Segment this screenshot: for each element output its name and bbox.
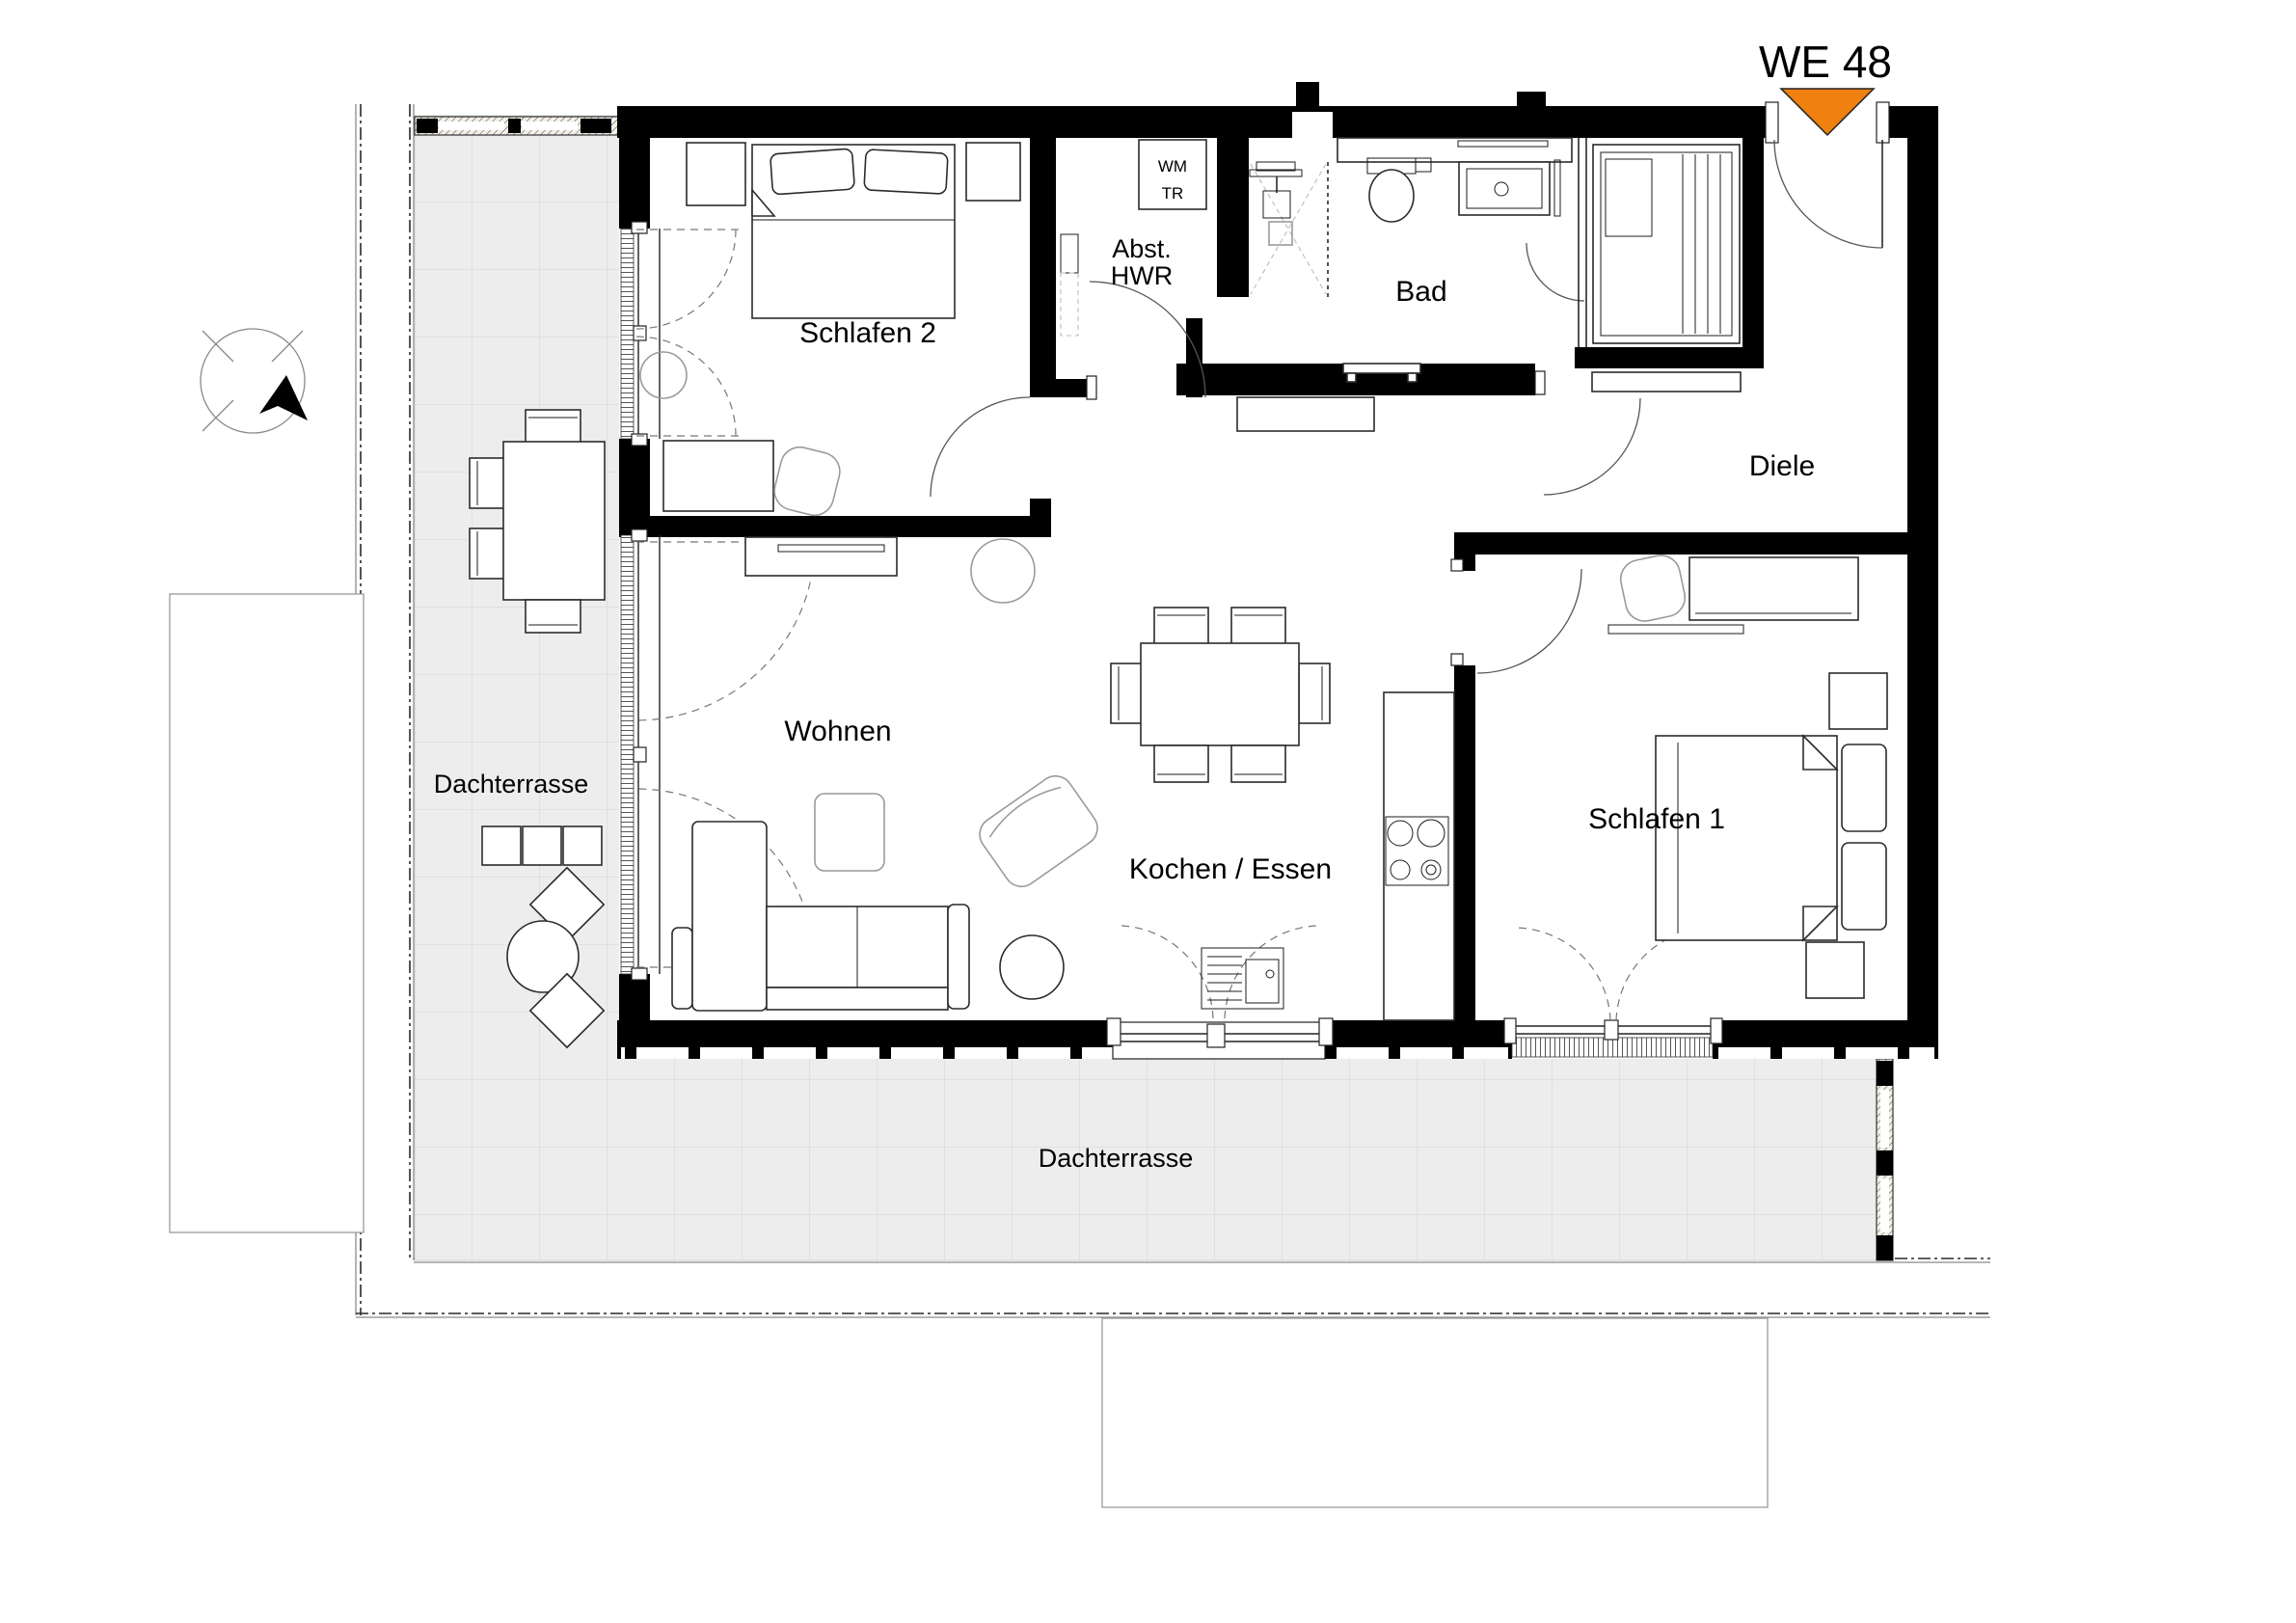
adjacent-roof-bottom (1102, 1318, 1768, 1507)
label-schlafen1: Schlafen 1 (1588, 803, 1725, 835)
label-kochen-essen: Kochen / Essen (1129, 853, 1332, 885)
railing-right-icon (1877, 1059, 1893, 1260)
nightstand (1806, 942, 1864, 998)
nightstand (966, 143, 1020, 201)
sideboard (663, 441, 773, 511)
nightstand (687, 143, 745, 205)
kitchen-counter (1384, 692, 1454, 1020)
bed-schlafen2 (752, 145, 955, 318)
nightstand (1829, 673, 1887, 729)
unit-label: WE 48 (1759, 37, 1892, 87)
tv-sideboard (745, 537, 897, 576)
sideboard (1237, 397, 1374, 431)
label-wm: WM (1158, 157, 1187, 176)
label-tr: TR (1162, 184, 1184, 203)
railing-top-icon (415, 117, 633, 135)
north-arrow-icon (201, 329, 308, 433)
adjacent-roof-left (170, 594, 364, 1232)
terrace-planters (482, 826, 602, 865)
label-hwr: HWR (1111, 261, 1173, 290)
label-dachterrasse-left: Dachterrasse (434, 770, 589, 798)
label-schlafen2: Schlafen 2 (799, 317, 936, 349)
label-diele: Diele (1749, 450, 1815, 482)
label-wohnen: Wohnen (784, 716, 891, 747)
side-table (1000, 935, 1064, 999)
sauna-step (1592, 372, 1741, 392)
label-bad: Bad (1395, 276, 1446, 308)
washbasin-icon (1459, 162, 1550, 215)
label-abst: Abst. (1112, 234, 1172, 263)
label-dachterrasse-bottom: Dachterrasse (1039, 1144, 1194, 1173)
floor-plan: Dachterrasse Dachterrasse (0, 0, 2296, 1623)
